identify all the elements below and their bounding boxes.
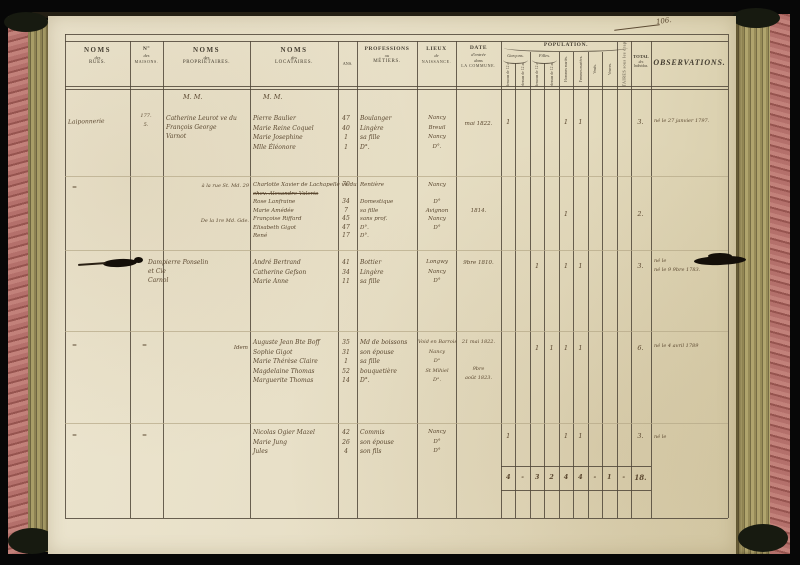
street-name: Laiponnerie bbox=[68, 117, 128, 126]
header-total: TOTAL des Individus. bbox=[631, 54, 651, 69]
tick-cell bbox=[501, 210, 515, 218]
ages-entries: 42264 bbox=[336, 428, 356, 457]
handwritten-line: bouquetière bbox=[360, 367, 416, 377]
handwritten-line: sans prof. bbox=[360, 215, 416, 224]
handwritten-line: né le 4 avril 1789 bbox=[654, 342, 728, 351]
register-entry: Laiponnerie 177.5. Catherine Leurot ve d… bbox=[48, 110, 736, 178]
tick-cell: 1 bbox=[559, 210, 573, 218]
proprietaire-note: De la 1re Md. Gde. bbox=[165, 218, 249, 224]
handwritten-line: 47 bbox=[336, 224, 356, 233]
header-line: N° bbox=[130, 46, 163, 53]
handwritten-line: 1 bbox=[336, 133, 356, 143]
register-entry: = à la rue St. Md. 29 De la 1re Md. Gde.… bbox=[48, 180, 736, 254]
professions-entries: Rentière Domestiquesa fillesans prof.D°.… bbox=[360, 181, 416, 241]
street-ditto: = bbox=[72, 184, 77, 191]
handwritten-line: D°. bbox=[418, 376, 456, 386]
cover-wear-patch bbox=[738, 524, 788, 552]
handwritten-line bbox=[457, 198, 500, 207]
tick-cell bbox=[602, 262, 616, 270]
header-line: PROFESSIONS bbox=[357, 46, 417, 53]
handwritten-line: 47 bbox=[336, 114, 356, 124]
observations-entries: né le 4 avril 1789 bbox=[654, 342, 728, 351]
handwritten-line: et Cie bbox=[148, 267, 250, 276]
header-line: LOCATAIRES. bbox=[250, 60, 338, 66]
handwritten-line: Nancy bbox=[419, 114, 455, 124]
locataires-entries: André BertrandCatherine GefsonMarie Anne bbox=[253, 258, 345, 287]
handwritten-line: André Bertrand bbox=[253, 258, 345, 268]
lieux-entries: Nancy D°AvignonNancyD° bbox=[419, 181, 455, 232]
handwritten-line: Bottier bbox=[360, 258, 416, 268]
handwritten-line: D°. bbox=[360, 376, 416, 386]
handwritten-line: Nancy bbox=[419, 428, 455, 438]
tick-cell bbox=[617, 262, 631, 270]
handwritten-line: Idem bbox=[206, 344, 248, 353]
handwritten-line: Md de boissons bbox=[360, 338, 416, 348]
handwritten-line: D° bbox=[419, 198, 455, 207]
house-ditto: = bbox=[142, 342, 147, 349]
tick-cell: 1 bbox=[559, 118, 573, 126]
header-line: Individus. bbox=[631, 64, 651, 68]
handwritten-line: 177. bbox=[132, 112, 160, 121]
tick-cell: - bbox=[515, 473, 529, 481]
tick-cell bbox=[530, 118, 544, 126]
handwritten-line: Marie Josephine bbox=[253, 133, 345, 143]
ink-blot bbox=[134, 257, 143, 263]
handwritten-line: 1814. bbox=[457, 207, 500, 216]
tick-cell bbox=[588, 210, 602, 218]
header-population: POPULATION. bbox=[501, 42, 631, 49]
handwritten-line: 42 bbox=[336, 428, 356, 438]
header-line: RUES. bbox=[65, 60, 130, 66]
tick-cell bbox=[588, 344, 602, 352]
popcol-filles-moins-12: au-dessous de 12 ans. bbox=[530, 63, 544, 86]
handwritten-line: 9bre bbox=[457, 365, 500, 374]
handwritten-line: Longwy bbox=[419, 258, 455, 268]
handwritten-line: Jules bbox=[253, 447, 345, 457]
tick-cell bbox=[530, 210, 544, 218]
header-lieux-naissance: LIEUX de NAISSANCE. bbox=[417, 46, 456, 64]
header-line: PROPRIÉTAIRES. bbox=[163, 60, 250, 66]
lieux-entries: Void en BarroisNancyD°St MihielD°. bbox=[418, 338, 456, 386]
row-separator bbox=[65, 423, 728, 424]
tick-cell: 1 bbox=[573, 432, 587, 440]
table-rule-h bbox=[65, 34, 728, 35]
handwritten-line: D°. bbox=[360, 143, 416, 153]
book-cover-right-edge bbox=[770, 14, 790, 554]
tick-cell: 1 bbox=[530, 344, 544, 352]
tick-cell bbox=[617, 210, 631, 218]
handwritten-line: D° bbox=[419, 438, 455, 448]
handwritten-line: 40 bbox=[336, 124, 356, 134]
handwritten-line: Rentière bbox=[360, 181, 416, 190]
ink-flourish bbox=[614, 24, 660, 31]
handwritten-line: D° bbox=[418, 357, 456, 367]
page-edges-right bbox=[736, 18, 772, 554]
handwritten-line: 31 bbox=[336, 348, 356, 358]
professions-entries: Md de boissonsson épousesa fillebouqueti… bbox=[360, 338, 416, 386]
handwritten-line: D°. bbox=[360, 224, 416, 233]
handwritten-line: Avignon bbox=[419, 207, 455, 216]
handwritten-line: né le bbox=[654, 434, 728, 440]
handwritten-line: 4 bbox=[336, 447, 356, 457]
handwritten-line: 11 bbox=[336, 277, 356, 287]
house-ditto: = bbox=[142, 432, 147, 439]
tick-cell bbox=[515, 262, 529, 270]
rotated-label: MILITAIRES sous les drapeaux. bbox=[622, 42, 627, 86]
population-ticks: 111 bbox=[501, 118, 631, 126]
ink-blot bbox=[103, 258, 137, 268]
tick-cell: 1 bbox=[573, 262, 587, 270]
tick-cell: 3 bbox=[530, 473, 544, 481]
header-filles: Filles. bbox=[530, 53, 559, 59]
header-line: MÉTIERS. bbox=[357, 59, 417, 65]
proprietaire-entries: Catherine Leurot ve duFrançois GeorgeVar… bbox=[166, 114, 250, 141]
handwritten-line bbox=[360, 190, 416, 199]
handwritten-line: 17 bbox=[336, 232, 356, 241]
handwritten-line bbox=[457, 347, 500, 356]
handwritten-line: Catherine Leurot ve du bbox=[166, 114, 250, 123]
handwritten-line: sa fille bbox=[360, 133, 416, 143]
handwritten-line: Marie Reine Coquel bbox=[253, 124, 345, 134]
handwritten-line: Catherine Gefson bbox=[253, 268, 345, 278]
tick-cell bbox=[515, 210, 529, 218]
population-ticks: 111 bbox=[501, 432, 631, 440]
observations-entries: né le 27 janvier 1797. bbox=[654, 117, 728, 126]
rotated-label: Veuves. bbox=[608, 63, 612, 75]
handwritten-line: Lingère bbox=[360, 124, 416, 134]
tick-cell: 4 bbox=[501, 473, 515, 481]
handwritten-line: 9bre 1810. bbox=[457, 260, 500, 266]
locataires-entries: Auguste Jean Bte BoffSophie GigotMarie T… bbox=[253, 338, 345, 386]
lieux-entries: LongwyNancyD° bbox=[419, 258, 455, 287]
ages-entries: 413411 bbox=[336, 258, 356, 287]
rotated-label: au-dessus de 12 ans. bbox=[521, 63, 525, 86]
popcol-garcons-plus-12: au-dessus de 12 ans. bbox=[515, 63, 530, 86]
ages-entries: 70 347454717 bbox=[336, 181, 356, 241]
handwritten-line: D°. bbox=[360, 232, 416, 241]
handwritten-line: Sophie Gigot bbox=[253, 348, 345, 358]
header-line: MAISONS. bbox=[130, 59, 163, 64]
handwritten-line: son fils bbox=[360, 447, 416, 457]
date-entries: 21 mai 1822. 9breaoût 1823. bbox=[457, 338, 500, 383]
total-individus: 6. bbox=[631, 344, 650, 352]
tick-cell bbox=[588, 118, 602, 126]
handwritten-line: 70 bbox=[336, 181, 356, 190]
popcol-veufs: Veufs. bbox=[588, 52, 602, 86]
table-rule-h bbox=[65, 86, 728, 87]
tick-cell bbox=[544, 118, 558, 126]
tick-cell: 1 bbox=[501, 118, 515, 126]
date-entries: mai 1822. bbox=[457, 120, 500, 130]
handwritten-line: Dampierre Ponselin bbox=[148, 258, 250, 267]
handwritten-line: Nancy bbox=[419, 268, 455, 278]
header-line: NAISSANCE. bbox=[417, 59, 456, 64]
header-date-entree: DATE d'entrée dans LA COMMUNE. bbox=[456, 45, 501, 68]
handwritten-line: 14 bbox=[336, 376, 356, 386]
handwritten-line: Mlle Éléonore bbox=[253, 143, 345, 153]
handwritten-line: Nancy bbox=[419, 133, 455, 143]
handwritten-line: Carnol bbox=[148, 276, 250, 285]
handwritten-line: Lingère bbox=[360, 268, 416, 278]
cover-wear-patch bbox=[4, 12, 48, 32]
handwritten-line: 45 bbox=[336, 215, 356, 224]
tick-cell: 4 bbox=[559, 473, 573, 481]
handwritten-line: 41 bbox=[336, 258, 356, 268]
tick-cell bbox=[617, 118, 631, 126]
total-individus: 3. bbox=[631, 432, 650, 440]
population-ticks: 111 bbox=[501, 262, 631, 270]
register-entry: = = Nicolas Ogier MazelMarie JungJules 4… bbox=[48, 426, 736, 468]
handwritten-line: né le 27 janvier 1797. bbox=[654, 117, 728, 126]
handwritten-line bbox=[457, 181, 500, 190]
handwritten-line: Boulanger bbox=[360, 114, 416, 124]
popcol-hommes-maries: Hommes mariés. bbox=[559, 52, 573, 86]
register-entry: = = Idem Auguste Jean Bte BoffSophie Gig… bbox=[48, 336, 736, 421]
handwritten-line: son épouse bbox=[360, 438, 416, 448]
header-line: LIEUX bbox=[417, 46, 456, 53]
ink-blot bbox=[708, 253, 732, 259]
page-edges-left bbox=[28, 20, 50, 552]
handwritten-line: Auguste Jean Bte Boff bbox=[253, 338, 345, 348]
date-entries: 9bre 1810. bbox=[457, 260, 500, 266]
rotated-label: au-dessous de 12 ans. bbox=[506, 63, 510, 86]
header-professions: PROFESSIONS ou MÉTIERS. bbox=[357, 46, 417, 65]
rotated-label: Hommes mariés. bbox=[564, 56, 568, 82]
tick-cell bbox=[501, 344, 515, 352]
tick-cell: 1 bbox=[559, 432, 573, 440]
header-line: NOMS bbox=[250, 46, 338, 55]
total-individus: 2. bbox=[631, 210, 650, 218]
mm-locataires: M. M. bbox=[263, 93, 283, 101]
header-line: TOTAL bbox=[631, 54, 651, 60]
header-numero-maisons: N° des MAISONS. bbox=[130, 46, 163, 64]
rotated-label: Femmes mariées. bbox=[579, 56, 583, 83]
header-noms-rues: NOMS des RUES. bbox=[65, 46, 130, 67]
tick-cell bbox=[617, 432, 631, 440]
total-individus: 3. bbox=[631, 118, 650, 126]
locataires-entries: Nicolas Ogier MazelMarie JungJules bbox=[253, 428, 345, 457]
handwritten-line: D° bbox=[419, 447, 455, 457]
proprietaire-entries: Dampierre Ponselinet CieCarnol bbox=[148, 258, 250, 285]
rotated-label: au-dessus de 12 ans. bbox=[550, 63, 554, 86]
street-ditto: = bbox=[72, 342, 77, 349]
header-noms-proprietaires: NOMS des PROPRIÉTAIRES. bbox=[163, 46, 250, 67]
table-rule-h bbox=[65, 518, 728, 519]
tick-cell: 1 bbox=[530, 262, 544, 270]
handwritten-line: D° bbox=[419, 277, 455, 287]
date-entries: 1814. bbox=[457, 181, 500, 215]
header-line: LA COMMUNE. bbox=[456, 63, 501, 68]
header-garcons: Garçons. bbox=[501, 53, 530, 59]
locataires-entries: Pierre BaulierMarie Reine CoquelMarie Jo… bbox=[253, 114, 345, 152]
handwritten-line bbox=[336, 190, 356, 199]
proprietaire-entries: Idem bbox=[206, 344, 248, 353]
tick-cell bbox=[602, 210, 616, 218]
professions-entries: BoulangerLingèresa filleD°. bbox=[360, 114, 416, 152]
tick-cell: 1 bbox=[559, 344, 573, 352]
handwritten-line: D°. bbox=[419, 143, 455, 153]
tick-cell bbox=[544, 432, 558, 440]
handwritten-line: 52 bbox=[336, 367, 356, 377]
handwritten-line bbox=[419, 190, 455, 199]
tick-cell bbox=[530, 432, 544, 440]
handwritten-line: D° bbox=[419, 224, 455, 233]
tick-cell bbox=[617, 344, 631, 352]
handwritten-line: Breuil bbox=[419, 124, 455, 134]
tick-cell: 1 bbox=[573, 118, 587, 126]
tick-cell bbox=[544, 210, 558, 218]
handwritten-line: Nancy bbox=[419, 181, 455, 190]
handwritten-line: St Mihiel bbox=[418, 367, 456, 377]
handwritten-line: Pierre Baulier bbox=[253, 114, 345, 124]
tick-cell bbox=[602, 118, 616, 126]
tick-cell bbox=[544, 262, 558, 270]
rotated-label: Veufs. bbox=[593, 64, 597, 74]
ink-blot-tail bbox=[78, 262, 106, 266]
header-observations: OBSERVATIONS. bbox=[651, 58, 728, 68]
street-ditto: = bbox=[72, 432, 77, 439]
handwritten-line: Nancy bbox=[418, 348, 456, 358]
tick-cell bbox=[515, 344, 529, 352]
handwritten-line: 5. bbox=[132, 121, 160, 130]
popcol-femmes-mariees: Femmes mariées. bbox=[573, 52, 588, 86]
handwritten-line: 21 mai 1822. bbox=[457, 338, 500, 347]
handwritten-line: Varnot bbox=[166, 132, 250, 141]
header-line: NOMS bbox=[65, 46, 130, 55]
tick-cell: 1 bbox=[501, 432, 515, 440]
register-entry: Dampierre Ponselinet CieCarnol André Ber… bbox=[48, 256, 736, 326]
tick-cell: 2 bbox=[544, 473, 558, 481]
handwritten-line: mai 1822. bbox=[457, 120, 500, 130]
handwritten-line: Marie Thérèse Claire bbox=[253, 357, 345, 367]
popcol-garcons-moins-12: au-dessous de 12 ans. bbox=[501, 63, 515, 86]
photograph-background: 106. bbox=[0, 0, 800, 565]
handwritten-line: François George bbox=[166, 123, 250, 132]
row-separator bbox=[65, 331, 728, 332]
observations-entries: né le bbox=[654, 434, 728, 440]
tick-cell: - bbox=[588, 473, 602, 481]
tick-cell: 1 bbox=[573, 344, 587, 352]
handwritten-line: 1 bbox=[336, 357, 356, 367]
header-age: ANS. bbox=[338, 61, 357, 66]
tick-cell: 1 bbox=[559, 262, 573, 270]
totals-box-rule bbox=[501, 490, 651, 491]
handwritten-line: Nancy bbox=[419, 215, 455, 224]
handwritten-line: Marie Jung bbox=[253, 438, 345, 448]
population-column-totals: 4-3244-1- bbox=[501, 473, 631, 481]
professions-entries: Commisson épouseson fils bbox=[360, 428, 416, 457]
tick-cell bbox=[501, 262, 515, 270]
handwritten-line: Domestique bbox=[360, 198, 416, 207]
handwritten-line: Void en Barrois bbox=[418, 338, 456, 348]
header-line: NOMS bbox=[163, 46, 250, 55]
handwritten-line bbox=[457, 190, 500, 199]
total-individus: 3. bbox=[631, 262, 650, 270]
handwritten-line: 35 bbox=[336, 338, 356, 348]
tick-cell: 1 bbox=[544, 344, 558, 352]
handwritten-line: Commis bbox=[360, 428, 416, 438]
popcol-veuves: Veuves. bbox=[602, 52, 617, 86]
handwritten-line: Magdelaine Thomas bbox=[253, 367, 345, 377]
tick-cell bbox=[573, 210, 587, 218]
population-ticks: 1 bbox=[501, 210, 631, 218]
handwritten-line: Marguerite Thomas bbox=[253, 376, 345, 386]
handwritten-line bbox=[457, 356, 500, 365]
handwritten-line: son épouse bbox=[360, 348, 416, 358]
ages-entries: 353115214 bbox=[336, 338, 356, 386]
handwritten-line: sa fille bbox=[360, 207, 416, 216]
tick-cell bbox=[602, 432, 616, 440]
table-rule-h bbox=[65, 89, 728, 90]
handwritten-line: né le 9 9bre 1783. bbox=[654, 266, 728, 275]
handwritten-line: 26 bbox=[336, 438, 356, 448]
handwritten-line: Marie Anne bbox=[253, 277, 345, 287]
register-page: 106. bbox=[48, 16, 736, 554]
handwritten-line: 1 bbox=[336, 143, 356, 153]
header-line: DATE bbox=[456, 45, 501, 52]
tick-cell bbox=[515, 432, 529, 440]
ages-entries: 474011 bbox=[336, 114, 356, 152]
grand-total: 18. bbox=[631, 473, 650, 482]
handwritten-line: août 1823. bbox=[457, 374, 500, 383]
tick-cell bbox=[602, 344, 616, 352]
handwritten-line: sa fille bbox=[360, 357, 416, 367]
popcol-filles-plus-12: au-dessus de 12 ans. bbox=[544, 63, 559, 86]
popcol-militaires: MILITAIRES sous les drapeaux. bbox=[617, 42, 631, 86]
rotated-label: au-dessous de 12 ans. bbox=[535, 63, 539, 86]
tick-cell bbox=[588, 262, 602, 270]
population-ticks: 1111 bbox=[501, 344, 631, 352]
tick-cell bbox=[588, 432, 602, 440]
book-cover-left-edge bbox=[8, 16, 28, 554]
handwritten-line: 34 bbox=[336, 198, 356, 207]
lieux-entries: NancyD°D° bbox=[419, 428, 455, 457]
professions-entries: BottierLingèresa fille bbox=[360, 258, 416, 287]
handwritten-line: 7 bbox=[336, 207, 356, 216]
tick-cell: 4 bbox=[573, 473, 587, 481]
lieux-entries: NancyBreuilNancyD°. bbox=[419, 114, 455, 152]
handwritten-line: 34 bbox=[336, 268, 356, 278]
house-number: 177.5. bbox=[132, 112, 160, 129]
handwritten-line: Nicolas Ogier Mazel bbox=[253, 428, 345, 438]
tick-cell: - bbox=[617, 473, 631, 481]
proprietaire-note: à la rue St. Md. 29 bbox=[165, 183, 249, 189]
tick-cell: 1 bbox=[602, 473, 616, 481]
handwritten-line: sa fille bbox=[360, 277, 416, 287]
cover-wear-patch bbox=[732, 8, 780, 28]
header-noms-locataires: NOMS des LOCATAIRES. bbox=[250, 46, 338, 67]
tick-cell bbox=[515, 118, 529, 126]
mm-proprietaires: M. M. bbox=[183, 93, 203, 101]
